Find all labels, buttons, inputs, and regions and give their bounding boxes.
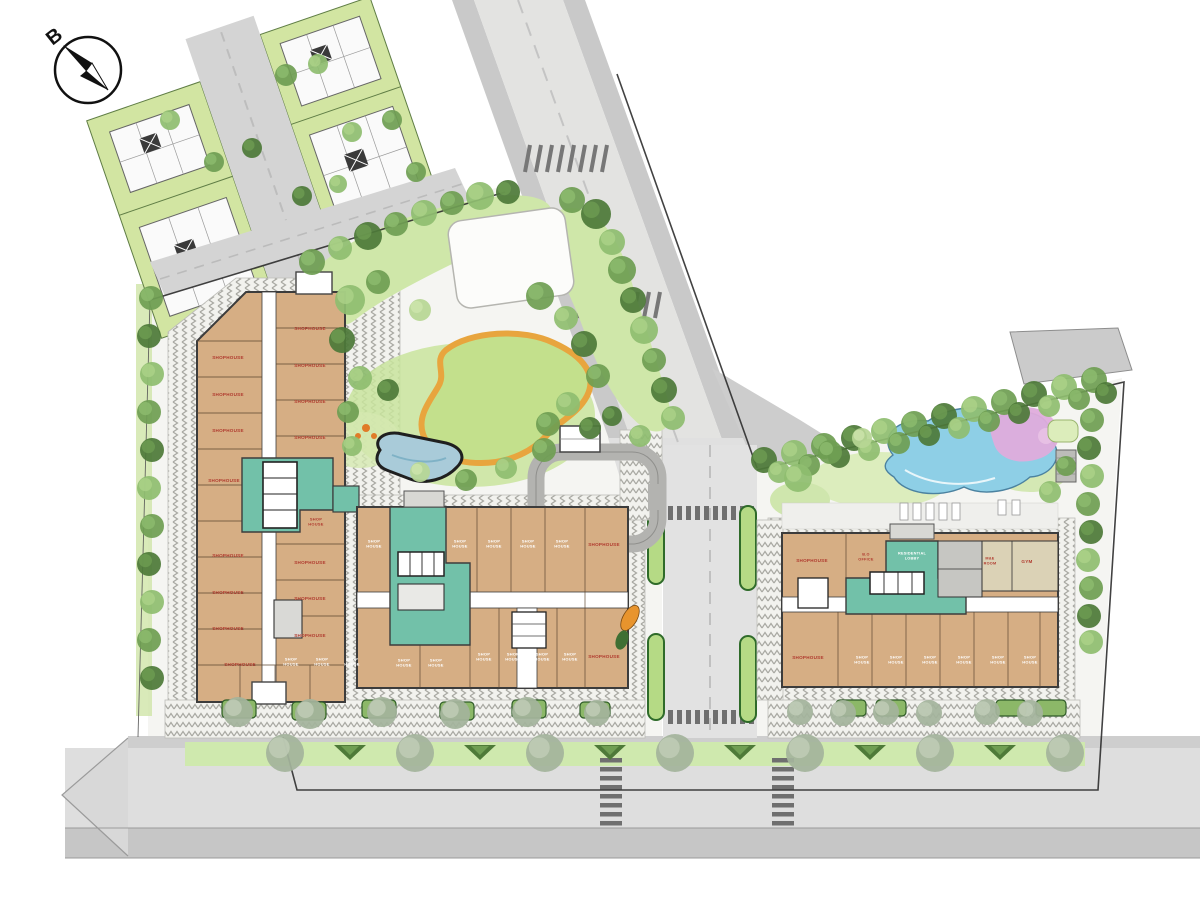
unit-label: SHOPHOUSE bbox=[792, 655, 824, 660]
compass: B bbox=[42, 24, 121, 103]
tree bbox=[137, 400, 161, 424]
tree bbox=[1077, 436, 1101, 460]
tree bbox=[140, 514, 164, 538]
tree bbox=[1095, 382, 1117, 404]
tree bbox=[1076, 548, 1100, 572]
mini-court bbox=[1048, 420, 1078, 442]
unit-label: SHOPHOUSE bbox=[990, 655, 1006, 665]
unit-label: M&EROOM bbox=[984, 557, 997, 566]
unit-label: SHOPHOUSE bbox=[212, 626, 244, 631]
unit-label: SHOPHOUSE bbox=[452, 539, 468, 549]
tree bbox=[579, 417, 601, 439]
tree bbox=[1080, 408, 1104, 432]
tree bbox=[410, 462, 430, 482]
tree bbox=[335, 285, 365, 315]
tree bbox=[329, 175, 347, 193]
compass-label: B bbox=[42, 24, 67, 50]
tree bbox=[526, 734, 564, 772]
unit-label: SHOPHOUSE bbox=[294, 435, 326, 440]
unit-label: SHOPHOUSE bbox=[212, 355, 244, 360]
unit-label: GYM bbox=[1021, 559, 1032, 564]
tree bbox=[1079, 520, 1103, 544]
unit-label: SHOPHOUSE bbox=[534, 652, 550, 662]
tree bbox=[382, 110, 402, 130]
unit-label: SHOPHOUSE bbox=[486, 539, 502, 549]
tree bbox=[137, 552, 161, 576]
tree bbox=[275, 64, 297, 86]
tree bbox=[786, 734, 824, 772]
tree bbox=[620, 287, 646, 313]
unit-label: SHOPHOUSE bbox=[294, 633, 326, 638]
tree bbox=[584, 700, 610, 726]
tree bbox=[137, 628, 161, 652]
unit-label: SHOPHOUSE bbox=[212, 590, 244, 595]
tree bbox=[409, 299, 431, 321]
unit-label: SHOPHOUSE bbox=[520, 539, 536, 549]
elevator-core bbox=[870, 572, 924, 594]
unit-label: SHOPHOUSE bbox=[588, 542, 620, 547]
tree bbox=[139, 286, 163, 310]
tree bbox=[888, 432, 910, 454]
unit-label: SHOPHOUSE bbox=[344, 657, 360, 667]
tree bbox=[295, 699, 325, 729]
tree bbox=[536, 412, 560, 436]
tree bbox=[455, 469, 477, 491]
event-lawn bbox=[446, 206, 575, 310]
tree bbox=[1008, 402, 1030, 424]
stair-core bbox=[512, 612, 546, 648]
tree bbox=[1056, 456, 1076, 476]
tree bbox=[571, 331, 597, 357]
unit-label: SHOPHOUSE bbox=[505, 652, 521, 662]
unit-label: SHOPHOUSE bbox=[796, 558, 828, 563]
tree bbox=[495, 457, 517, 479]
tree bbox=[1046, 734, 1084, 772]
tree bbox=[1079, 576, 1103, 600]
right-building bbox=[782, 524, 1058, 687]
unit-label: SHOPHOUSE bbox=[294, 326, 326, 331]
corner-road bbox=[1010, 328, 1132, 384]
tree bbox=[377, 379, 399, 401]
tree bbox=[328, 236, 352, 260]
tree bbox=[137, 476, 161, 500]
tree bbox=[140, 362, 164, 386]
entrance-canopy bbox=[296, 272, 332, 294]
unit-label: SHOPHOUSE bbox=[212, 428, 244, 433]
unit-label: SHOPHOUSE bbox=[366, 539, 382, 549]
tree bbox=[140, 438, 164, 462]
tree bbox=[266, 734, 304, 772]
unit-label: SHOPHOUSE bbox=[314, 657, 330, 667]
entrance-canopy bbox=[252, 682, 286, 704]
tree bbox=[440, 699, 470, 729]
tree bbox=[630, 316, 658, 344]
tree bbox=[830, 700, 856, 726]
tree bbox=[602, 406, 622, 426]
tree bbox=[651, 377, 677, 403]
tree bbox=[599, 229, 625, 255]
tree bbox=[354, 222, 382, 250]
unit-label: SHOPHOUSE bbox=[294, 596, 326, 601]
entrance-canopy bbox=[890, 524, 934, 539]
tree bbox=[581, 199, 611, 229]
tree bbox=[140, 590, 164, 614]
tree bbox=[1076, 492, 1100, 516]
tree bbox=[787, 699, 813, 725]
tree bbox=[526, 282, 554, 310]
unit-label: SHOPHOUSE bbox=[588, 654, 620, 659]
tree bbox=[342, 436, 362, 456]
tree bbox=[223, 697, 253, 727]
tree bbox=[554, 306, 578, 330]
tree bbox=[852, 428, 872, 448]
tree bbox=[308, 54, 328, 74]
tree bbox=[299, 249, 325, 275]
stair-core bbox=[398, 584, 444, 610]
stair-core bbox=[798, 578, 828, 608]
tree bbox=[160, 110, 180, 130]
tree bbox=[661, 406, 685, 430]
unit-label: SHOPHOUSE bbox=[208, 478, 240, 483]
tree bbox=[342, 122, 362, 142]
unit-label: SHOPHOUSE bbox=[1022, 655, 1038, 665]
unit-label: SHOPHOUSE bbox=[294, 560, 326, 565]
elevator-core bbox=[263, 462, 297, 528]
unit-label: SHOPHOUSE bbox=[283, 657, 299, 667]
entrance-canopy bbox=[404, 491, 444, 507]
tree bbox=[608, 256, 636, 284]
unit-label: SHOPHOUSE bbox=[396, 658, 412, 668]
tree bbox=[140, 666, 164, 690]
tree bbox=[384, 212, 408, 236]
unit-label: SHOPHOUSE bbox=[554, 539, 570, 549]
tree bbox=[656, 734, 694, 772]
unit-label: SHOPHOUSE bbox=[888, 655, 904, 665]
tree bbox=[406, 162, 426, 182]
unit-label: SHOPHOUSE bbox=[212, 392, 244, 397]
tree bbox=[292, 186, 312, 206]
tree bbox=[367, 697, 397, 727]
tree bbox=[629, 425, 651, 447]
tree bbox=[1080, 464, 1104, 488]
unit-label: SHOPHOUSE bbox=[428, 658, 444, 668]
tree bbox=[496, 180, 520, 204]
tree bbox=[329, 327, 355, 353]
bottom-road bbox=[62, 736, 1200, 858]
amenity-room bbox=[982, 541, 1058, 591]
tree bbox=[440, 191, 464, 215]
tree bbox=[916, 734, 954, 772]
tree bbox=[978, 410, 1000, 432]
tree bbox=[204, 152, 224, 172]
tree bbox=[1077, 604, 1101, 628]
tree bbox=[784, 464, 812, 492]
tree bbox=[918, 424, 940, 446]
tree bbox=[1017, 700, 1043, 726]
tree bbox=[559, 187, 585, 213]
unit-label: SHOPHOUSE bbox=[476, 652, 492, 662]
tree bbox=[532, 438, 556, 462]
tree bbox=[948, 417, 970, 439]
tree bbox=[873, 699, 899, 725]
tree bbox=[137, 324, 161, 348]
tree bbox=[1039, 481, 1061, 503]
tree bbox=[1068, 388, 1090, 410]
tree bbox=[916, 700, 942, 726]
tree bbox=[586, 364, 610, 388]
unit-label: SHOPHOUSE bbox=[294, 363, 326, 368]
tree bbox=[642, 348, 666, 372]
unit-label: SHOPHOUSE bbox=[956, 655, 972, 665]
tree bbox=[556, 392, 580, 416]
site-plan: SHOPHOUSESHOPHOUSESHOPHOUSESHOPHOUSESHOP… bbox=[0, 0, 1200, 903]
unit-label: SHOPHOUSE bbox=[562, 652, 578, 662]
unit-label: SHOPHOUSE bbox=[854, 655, 870, 665]
unit-label: SHOPHOUSE bbox=[294, 399, 326, 404]
unit-label: SHOPHOUSE bbox=[224, 662, 256, 667]
tree bbox=[396, 734, 434, 772]
tree bbox=[1079, 630, 1103, 654]
unit-label: SHOPHOUSE bbox=[922, 655, 938, 665]
tree bbox=[242, 138, 262, 158]
tree bbox=[974, 699, 1000, 725]
tree bbox=[466, 182, 494, 210]
tree bbox=[366, 270, 390, 294]
tree bbox=[1038, 395, 1060, 417]
unit-label: SHOPHOUSE bbox=[212, 553, 244, 558]
tree bbox=[337, 401, 359, 423]
elevator-core bbox=[398, 552, 444, 576]
tree bbox=[818, 440, 842, 464]
tree bbox=[512, 697, 542, 727]
tree bbox=[348, 366, 372, 390]
unit-label: SHOPHOUSE bbox=[308, 517, 324, 527]
tree bbox=[411, 200, 437, 226]
